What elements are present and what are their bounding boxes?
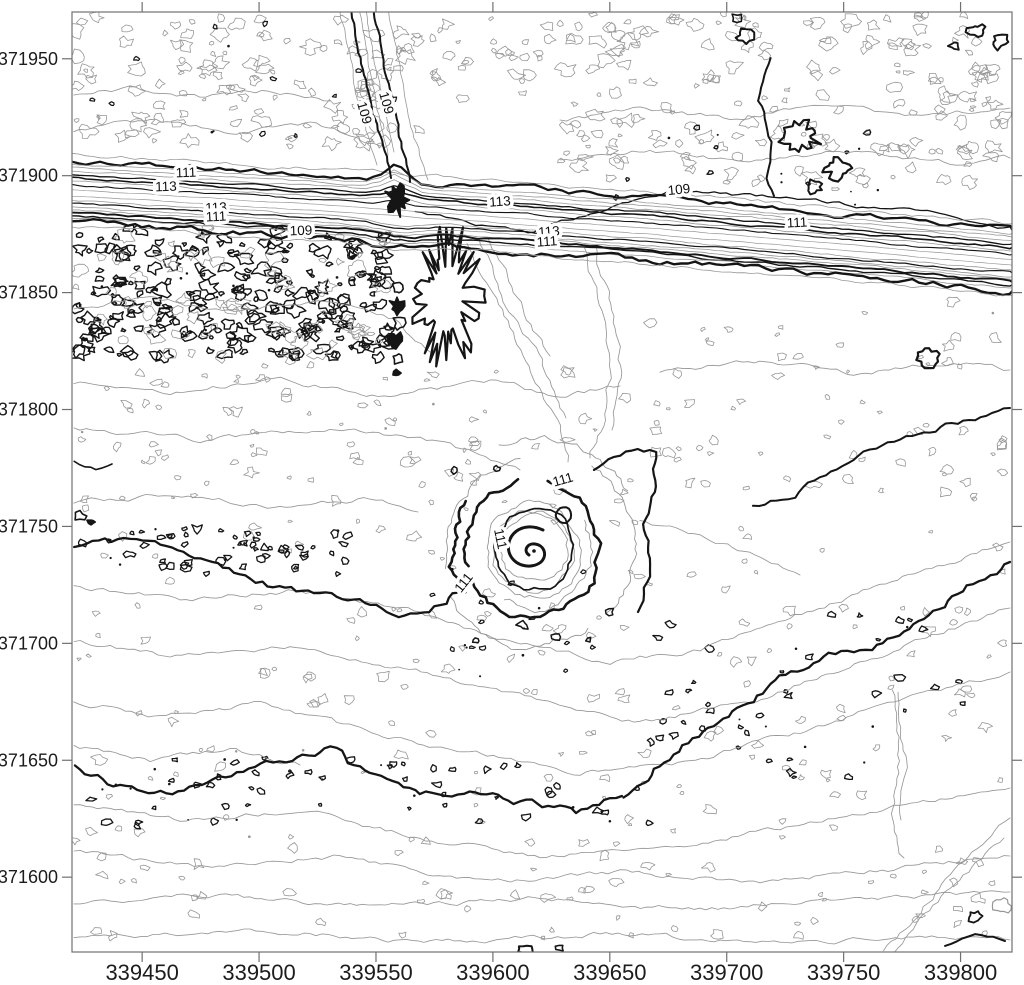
terrain-blob bbox=[192, 525, 203, 534]
terrain-blob bbox=[308, 88, 315, 96]
terrain-blob bbox=[443, 52, 455, 61]
terrain-dot bbox=[212, 130, 214, 132]
terrain-blob bbox=[628, 824, 632, 826]
terrain-blob bbox=[470, 646, 476, 649]
terrain-blob bbox=[671, 926, 678, 932]
terrain-blob bbox=[953, 906, 962, 911]
terrain-blob bbox=[263, 554, 271, 559]
terrain-blob bbox=[432, 782, 442, 788]
terrain-blob bbox=[520, 53, 530, 60]
terrain-blob bbox=[427, 372, 439, 378]
terrain-blob bbox=[978, 723, 993, 733]
terrain-blob bbox=[810, 17, 825, 29]
terrain-blob bbox=[549, 927, 554, 932]
terrain-blob bbox=[909, 110, 917, 116]
contour-black bbox=[594, 449, 656, 612]
terrain-blob bbox=[685, 122, 698, 135]
terrain-blob bbox=[174, 772, 179, 777]
terrain-blob-black bbox=[969, 911, 983, 922]
terrain-blob bbox=[65, 24, 84, 40]
terrain-blob bbox=[257, 788, 265, 794]
terrain-blob bbox=[96, 633, 101, 637]
terrain-blob bbox=[222, 804, 229, 810]
terrain-blob bbox=[442, 19, 454, 29]
terrain-blob bbox=[254, 548, 259, 551]
x-axis-label: 339700 bbox=[690, 960, 763, 985]
terrain-blob bbox=[334, 40, 342, 45]
contour-gray bbox=[585, 248, 612, 458]
terrain-blob bbox=[289, 834, 294, 839]
contour-gray bbox=[891, 690, 904, 858]
terrain-blob bbox=[121, 328, 126, 331]
contour-gray bbox=[74, 86, 330, 101]
terrain-blob bbox=[867, 20, 880, 30]
terrain-blob bbox=[101, 553, 109, 558]
y-axis-label: 371800 bbox=[0, 400, 58, 420]
terrain-blob bbox=[723, 180, 730, 184]
terrain-blob bbox=[115, 130, 131, 142]
terrain-blob bbox=[780, 671, 784, 673]
terrain-blob bbox=[97, 115, 107, 125]
terrain-dot bbox=[795, 647, 798, 650]
terrain-blob bbox=[187, 312, 201, 324]
terrain-blob bbox=[374, 400, 381, 406]
terrain-blob bbox=[824, 435, 831, 439]
contour-gray bbox=[74, 850, 1010, 882]
terrain-blob bbox=[900, 606, 904, 610]
terrain-blob bbox=[184, 532, 188, 537]
terrain-blob bbox=[148, 776, 153, 780]
terrain-blob bbox=[207, 435, 213, 441]
terrain-blob bbox=[618, 695, 630, 703]
terrain-blob bbox=[358, 403, 368, 408]
terrain-blob bbox=[216, 350, 232, 359]
terrain-blob bbox=[182, 527, 187, 531]
terrain-blob bbox=[292, 565, 299, 572]
terrain-blob bbox=[209, 41, 214, 45]
terrain-blob-black bbox=[555, 945, 563, 951]
terrain-blob bbox=[284, 38, 290, 44]
terrain-blob bbox=[244, 467, 260, 478]
contour-label: 111 bbox=[175, 165, 196, 181]
terrain-blob bbox=[883, 15, 891, 23]
terrain-blob bbox=[951, 333, 961, 342]
terrain-blob bbox=[134, 326, 143, 332]
terrain-blob bbox=[78, 64, 95, 78]
terrain-blob bbox=[923, 44, 932, 49]
terrain-blob bbox=[955, 607, 963, 614]
terrain-blob bbox=[262, 364, 268, 369]
terrain-blob bbox=[384, 326, 394, 330]
terrain-blob bbox=[614, 842, 620, 847]
terrain-blob bbox=[618, 134, 622, 137]
terrain-blob bbox=[687, 572, 696, 577]
terrain-blob bbox=[929, 149, 935, 154]
terrain-dot bbox=[154, 528, 156, 530]
terrain-blob bbox=[254, 109, 264, 114]
terrain-blob bbox=[387, 68, 391, 71]
terrain-blob bbox=[210, 28, 229, 42]
terrain-blob bbox=[84, 69, 88, 72]
terrain-blob bbox=[181, 29, 194, 39]
terrain-blob bbox=[724, 167, 738, 180]
terrain-dot bbox=[232, 285, 235, 288]
terrain-blob bbox=[639, 26, 658, 37]
terrain-dot bbox=[81, 431, 83, 433]
terrain-blob bbox=[674, 457, 682, 462]
terrain-blob bbox=[462, 61, 469, 64]
terrain-blob bbox=[554, 783, 561, 789]
terrain-blob bbox=[375, 267, 380, 270]
terrain-blob bbox=[287, 476, 291, 479]
terrain-blob bbox=[266, 278, 275, 283]
terrain-dot bbox=[609, 820, 612, 823]
contour-gray bbox=[596, 246, 622, 430]
terrain-blob bbox=[250, 76, 263, 86]
terrain-blob bbox=[597, 93, 601, 97]
terrain-blob bbox=[319, 803, 322, 806]
terrain-blob bbox=[738, 725, 743, 729]
terrain-blob bbox=[152, 554, 158, 558]
terrain-blob bbox=[430, 593, 435, 596]
terrain-blob bbox=[90, 928, 101, 935]
terrain-blob bbox=[326, 262, 333, 266]
terrain-blob bbox=[648, 131, 661, 141]
terrain-blob bbox=[792, 776, 797, 778]
terrain-blob bbox=[619, 393, 631, 403]
terrain-blob bbox=[307, 269, 313, 274]
terrain-blob bbox=[701, 327, 706, 331]
terrain-blob bbox=[189, 20, 195, 25]
x-axis-label: 339800 bbox=[924, 960, 997, 985]
terrain-dot bbox=[522, 654, 525, 657]
terrain-blob bbox=[383, 58, 393, 66]
terrain-dot bbox=[804, 746, 807, 749]
terrain-blob bbox=[609, 879, 624, 887]
terrain-blob bbox=[134, 829, 145, 837]
terrain-blob bbox=[141, 460, 145, 464]
terrain-blob bbox=[638, 749, 651, 758]
terrain-blob bbox=[221, 319, 234, 329]
terrain-blob bbox=[905, 162, 916, 173]
terrain-blob bbox=[971, 37, 982, 46]
terrain-blob bbox=[143, 306, 157, 321]
terrain-blob bbox=[90, 98, 95, 101]
terrain-dot bbox=[243, 542, 246, 545]
terrain-blob bbox=[259, 30, 272, 41]
terrain-blob bbox=[609, 521, 619, 527]
terrain-blob bbox=[747, 657, 756, 666]
terrain-blob bbox=[620, 626, 629, 631]
terrain-blob bbox=[74, 119, 79, 123]
terrain-blob bbox=[825, 139, 840, 152]
contour-gray bbox=[74, 608, 1010, 722]
terrain-blob bbox=[706, 702, 711, 706]
terrain-blob bbox=[894, 63, 900, 67]
terrain-blob bbox=[347, 618, 355, 624]
terrain-blob bbox=[825, 394, 830, 399]
terrain-blob bbox=[322, 137, 341, 151]
terrain-blob bbox=[656, 735, 664, 741]
contour-label: 113 bbox=[489, 193, 512, 209]
terrain-dot bbox=[466, 647, 468, 649]
terrain-blob bbox=[81, 311, 99, 324]
terrain-blob bbox=[778, 119, 788, 127]
terrain-blob bbox=[593, 807, 604, 814]
y-axis-label: 371750 bbox=[0, 516, 58, 536]
terrain-blob bbox=[586, 731, 595, 736]
terrain-blob bbox=[744, 681, 751, 687]
terrain-blob bbox=[628, 479, 634, 482]
terrain-blob bbox=[339, 423, 343, 426]
terrain-blob bbox=[821, 770, 832, 778]
y-axis-label: 371700 bbox=[0, 633, 58, 653]
terrain-blob bbox=[98, 237, 104, 242]
terrain-blob bbox=[624, 20, 631, 24]
terrain-blob bbox=[120, 36, 134, 47]
contour-lines-black bbox=[74, 14, 1011, 955]
terrain-blob bbox=[313, 344, 330, 353]
terrain-dot bbox=[992, 312, 995, 315]
terrain-blob bbox=[654, 420, 659, 425]
terrain-blob bbox=[160, 797, 165, 800]
terrain-blob bbox=[429, 550, 435, 554]
terrain-blob bbox=[465, 906, 471, 913]
terrain-blob bbox=[377, 249, 393, 259]
terrain-blob bbox=[732, 133, 744, 140]
terrain-blob bbox=[245, 268, 252, 272]
terrain-blob bbox=[544, 774, 553, 781]
terrain-blob bbox=[521, 814, 530, 821]
terrain-blob bbox=[964, 608, 970, 616]
terrain-blob bbox=[240, 350, 248, 355]
terrain-blob bbox=[705, 645, 715, 653]
terrain-blob bbox=[929, 447, 936, 456]
terrain-blob bbox=[308, 478, 314, 483]
terrain-dot bbox=[739, 718, 741, 720]
terrain-blob bbox=[847, 370, 850, 373]
x-axis-label: 339550 bbox=[339, 960, 412, 985]
terrain-dot bbox=[119, 563, 121, 565]
terrain-dot bbox=[180, 277, 183, 280]
terrain-blob-black bbox=[518, 946, 533, 955]
terrain-blob bbox=[314, 246, 331, 259]
terrain-blob bbox=[134, 266, 140, 271]
terrain-blob bbox=[170, 22, 180, 29]
contour-gray bbox=[74, 428, 520, 470]
terrain-blob bbox=[421, 837, 430, 845]
terrain-blob bbox=[509, 54, 518, 61]
terrain-blob bbox=[669, 733, 678, 740]
terrain-blob-black bbox=[808, 179, 822, 194]
terrain-blob bbox=[701, 863, 715, 873]
terrain-blob bbox=[344, 696, 354, 705]
terrain-blob bbox=[170, 40, 183, 50]
terrain-blob bbox=[982, 102, 987, 106]
terrain-blob bbox=[73, 284, 79, 290]
terrain-blob bbox=[686, 478, 695, 488]
terrain-dot bbox=[216, 296, 218, 298]
terrain-blob-black bbox=[393, 369, 401, 375]
terrain-blob bbox=[793, 354, 804, 360]
terrain-blob bbox=[194, 859, 204, 870]
terrain-blob bbox=[694, 83, 699, 88]
terrain-blob bbox=[779, 836, 785, 840]
terrain-blob bbox=[878, 488, 883, 493]
terrain-blob bbox=[795, 716, 805, 723]
terrain-blob bbox=[676, 140, 683, 148]
terrain-blob bbox=[179, 57, 185, 64]
terrain-blob bbox=[745, 730, 750, 735]
terrain-blob bbox=[559, 122, 573, 134]
terrain-blob bbox=[356, 69, 362, 73]
terrain-blob bbox=[489, 17, 494, 21]
terrain-dot bbox=[153, 768, 156, 771]
terrain-blob bbox=[249, 787, 254, 790]
terrain-blob bbox=[459, 646, 465, 652]
terrain-blob bbox=[109, 102, 114, 106]
terrain-blob bbox=[820, 548, 824, 552]
terrain-blob bbox=[349, 279, 355, 286]
terrain-blob bbox=[152, 138, 157, 143]
terrain-blob bbox=[799, 760, 806, 765]
contour-black bbox=[74, 461, 112, 469]
terrain-blob bbox=[829, 825, 837, 831]
terrain-blob bbox=[873, 745, 880, 751]
terrain-blob bbox=[756, 139, 767, 146]
terrain-blob bbox=[464, 508, 468, 511]
terrain-blob bbox=[663, 447, 676, 458]
terrain-blob bbox=[891, 175, 895, 179]
terrain-blob bbox=[89, 12, 104, 23]
terrain-blob bbox=[230, 119, 242, 126]
contour-label: 109 bbox=[376, 90, 397, 116]
terrain-blob bbox=[269, 348, 275, 352]
terrain-blob bbox=[987, 655, 991, 658]
terrain-blob bbox=[989, 333, 1001, 343]
terrain-blob bbox=[207, 746, 215, 752]
terrain-blob bbox=[787, 624, 792, 630]
terrain-blob bbox=[816, 90, 830, 101]
terrain-blob bbox=[581, 570, 586, 574]
terrain-blob bbox=[250, 542, 256, 548]
terrain-blob bbox=[495, 796, 498, 799]
terrain-blob bbox=[135, 369, 145, 377]
terrain-blob bbox=[223, 51, 227, 55]
terrain-blob bbox=[842, 475, 853, 484]
terrain-blob bbox=[907, 651, 915, 657]
terrain-blob bbox=[239, 133, 252, 142]
y-axis-label: 371850 bbox=[0, 283, 58, 303]
terrain-blob bbox=[589, 12, 598, 17]
terrain-blob bbox=[965, 50, 972, 55]
terrain-blob bbox=[926, 363, 930, 366]
terrain-blob bbox=[779, 819, 786, 825]
terrain-blob bbox=[589, 36, 607, 48]
terrain-blob bbox=[230, 760, 239, 765]
terrain-blob bbox=[795, 922, 801, 925]
terrain-blob bbox=[125, 130, 139, 138]
terrain-blob bbox=[695, 130, 714, 144]
terrain-blob bbox=[182, 243, 186, 247]
terrain-blob bbox=[586, 145, 591, 148]
terrain-blob bbox=[954, 921, 962, 928]
terrain-blob bbox=[458, 65, 465, 70]
terrain-dot bbox=[186, 272, 188, 274]
terrain-blob bbox=[119, 496, 125, 500]
terrain-blob bbox=[785, 88, 790, 92]
terrain-dot bbox=[780, 173, 782, 175]
terrain-blob bbox=[653, 140, 667, 148]
terrain-blob bbox=[571, 102, 578, 106]
terrain-blob bbox=[686, 18, 704, 31]
terrain-blob bbox=[236, 375, 240, 378]
terrain-blob bbox=[669, 18, 676, 24]
terrain-blob bbox=[200, 273, 204, 276]
x-axis-label: 339450 bbox=[105, 960, 178, 985]
terrain-blob bbox=[117, 354, 122, 357]
terrain-blob bbox=[762, 96, 768, 100]
terrain-blob bbox=[419, 481, 425, 487]
terrain-blob bbox=[229, 407, 243, 418]
terrain-dot bbox=[101, 788, 103, 790]
terrain-blob bbox=[706, 341, 714, 346]
terrain-blob bbox=[104, 386, 109, 390]
terrain-blob bbox=[641, 863, 655, 871]
terrain-blob bbox=[819, 38, 831, 44]
terrain-dot bbox=[380, 764, 382, 766]
terrain-blob bbox=[148, 262, 162, 275]
terrain-blob bbox=[288, 520, 292, 522]
terrain-blob bbox=[104, 347, 114, 352]
terrain-blob bbox=[210, 336, 214, 339]
terrain-blob bbox=[210, 257, 225, 268]
terrain-blob bbox=[524, 688, 530, 693]
terrain-blob bbox=[261, 543, 269, 550]
terrain-blob bbox=[525, 839, 535, 846]
terrain-blob bbox=[962, 141, 979, 153]
terrain-blob bbox=[865, 35, 880, 49]
terrain-blob bbox=[995, 112, 1012, 125]
terrain-blob bbox=[441, 664, 455, 673]
terrain-blob bbox=[256, 448, 267, 455]
terrain-blob bbox=[834, 106, 844, 114]
terrain-blob bbox=[309, 244, 320, 253]
contour-map: 1111131131111091091091131091131111111111… bbox=[0, 0, 1024, 985]
terrain-blob bbox=[165, 279, 171, 285]
terrain-blob bbox=[787, 769, 797, 777]
terrain-blob bbox=[431, 765, 437, 772]
terrain-blob bbox=[424, 379, 430, 381]
terrain-blob bbox=[544, 34, 556, 44]
terrain-blob bbox=[775, 333, 780, 337]
terrain-blob bbox=[281, 388, 291, 395]
terrain-blob bbox=[653, 636, 663, 641]
terrain-blob bbox=[270, 77, 276, 81]
terrain-blob bbox=[86, 797, 97, 801]
terrain-blob bbox=[146, 457, 155, 465]
terrain-blob bbox=[676, 447, 681, 451]
terrain-blob bbox=[213, 24, 217, 29]
terrain-blob bbox=[135, 603, 140, 609]
terrain-blob bbox=[370, 292, 375, 296]
terrain-blob bbox=[393, 26, 409, 39]
terrain-blob bbox=[519, 79, 524, 84]
terrain-blob bbox=[997, 469, 1008, 476]
terrain-blob bbox=[753, 23, 759, 28]
terrain-dot bbox=[413, 794, 416, 797]
terrain-blob bbox=[353, 129, 360, 135]
